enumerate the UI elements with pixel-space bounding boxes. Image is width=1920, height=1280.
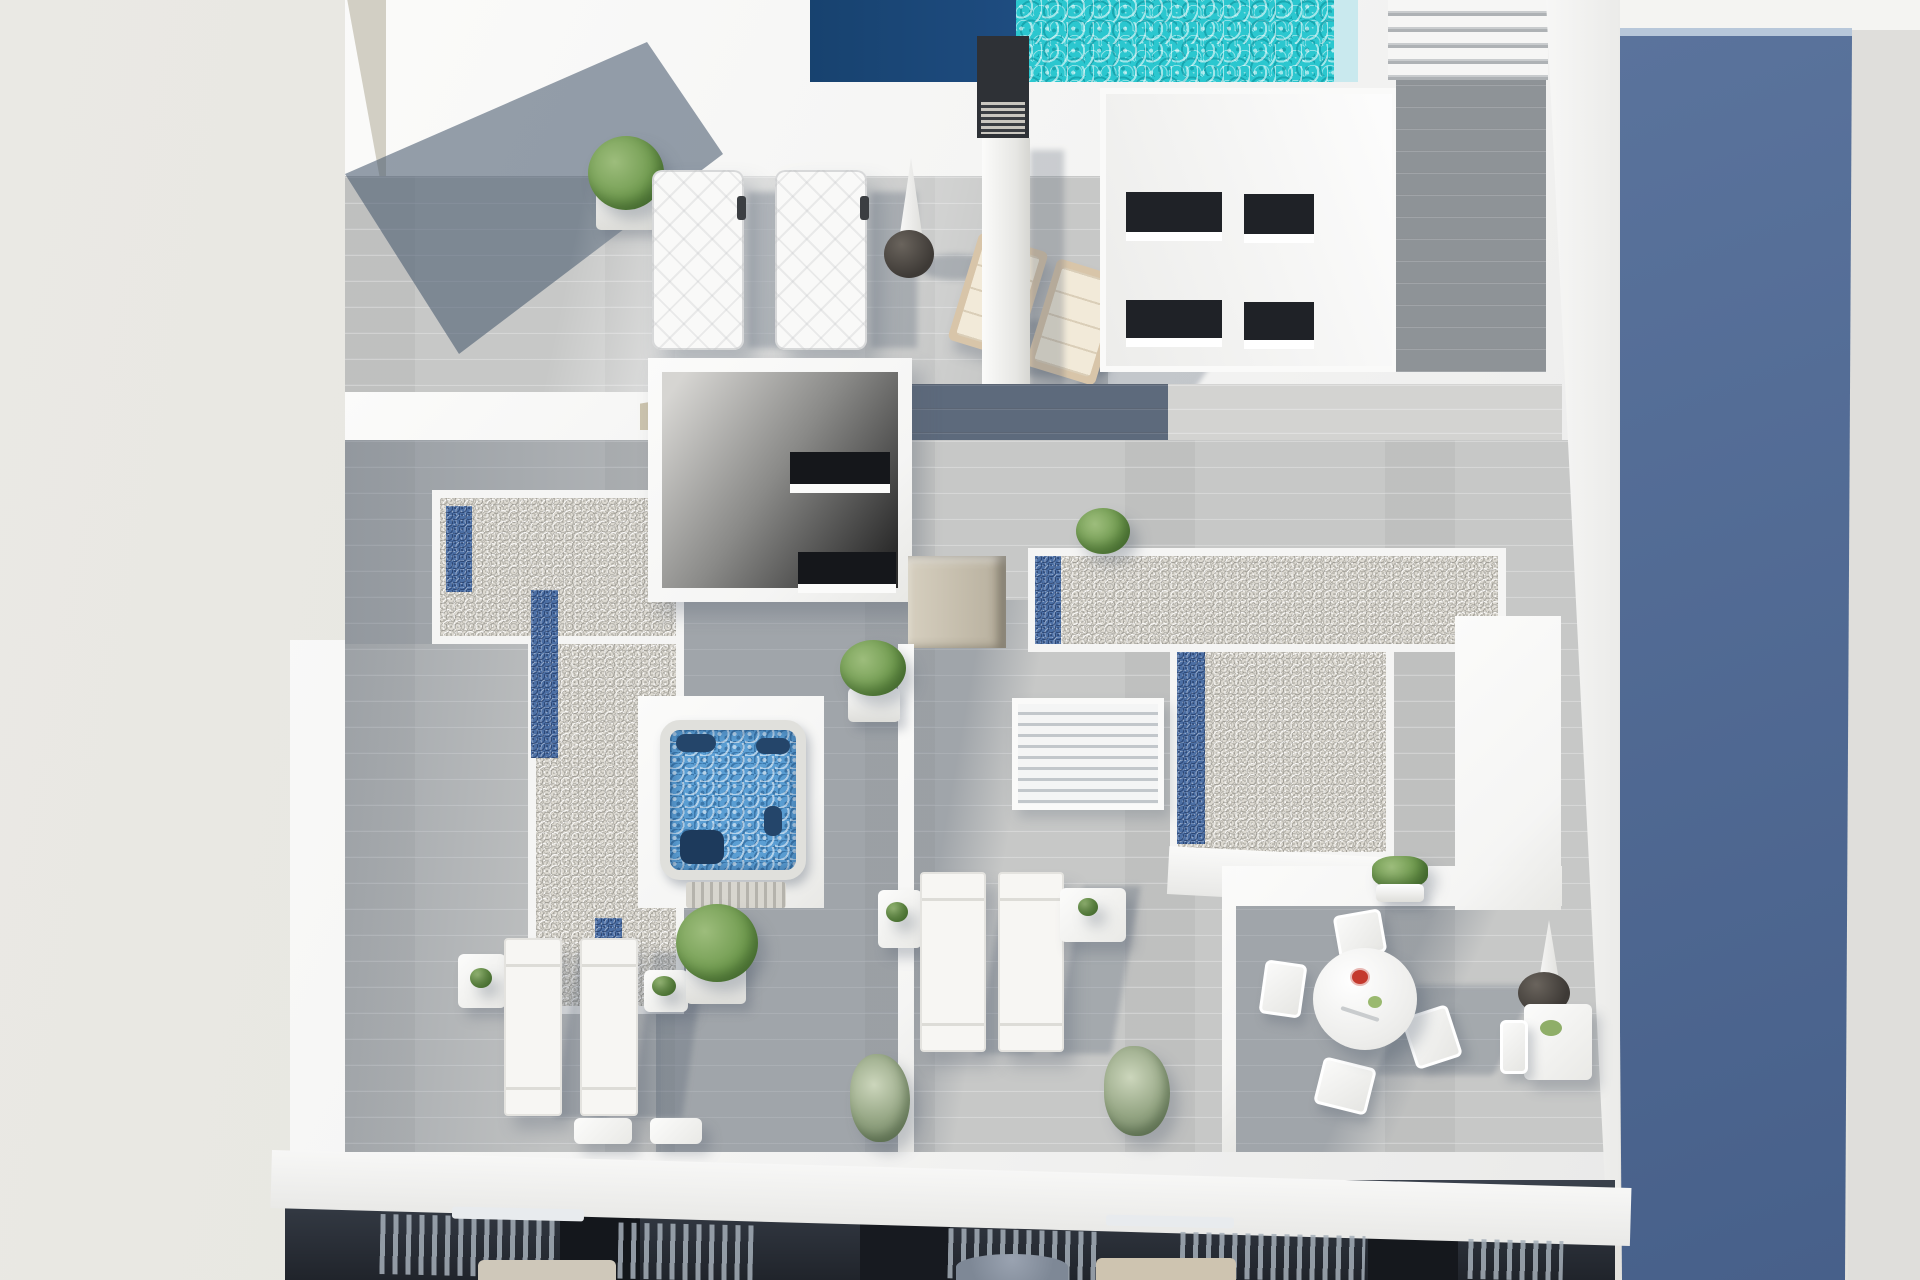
stairwell-window-4 xyxy=(1244,302,1314,340)
tiny-table-1 xyxy=(574,1118,632,1144)
doorway-recess xyxy=(908,556,1006,648)
skylight-strip-4 xyxy=(1035,556,1061,644)
stairwell-sill-1 xyxy=(1126,232,1222,241)
wall-planter-pot xyxy=(1376,884,1424,902)
big-plant-left xyxy=(676,904,758,982)
stairwell-window-3 xyxy=(1126,300,1222,338)
mid-plant xyxy=(840,640,906,696)
mini-table-plant xyxy=(652,976,676,996)
right-terrace-wood xyxy=(1396,40,1546,372)
balcony-railing-2 xyxy=(617,1222,753,1280)
pool-edge-step xyxy=(1334,0,1358,82)
lounger-wheel-1 xyxy=(737,196,746,220)
table-flower-decor xyxy=(1352,970,1368,984)
neighbor-glass-facade xyxy=(1612,36,1852,1280)
center-lounger-2 xyxy=(998,872,1064,1052)
dining-table-round xyxy=(1313,948,1417,1050)
center-lounger-1 xyxy=(920,872,986,1052)
interior-window-slit-1 xyxy=(790,452,890,484)
interior-window-slit-2 xyxy=(798,552,896,584)
hot-tub-seat-2 xyxy=(756,738,790,754)
left-lounger-1 xyxy=(504,938,562,1116)
side-table-center-plant xyxy=(886,902,908,922)
skylight-strip-5 xyxy=(1177,652,1205,844)
table-fruit-bowl xyxy=(1368,996,1382,1008)
stairwell-sill-3 xyxy=(1126,338,1222,347)
lower-floor-plant xyxy=(956,1254,1068,1280)
stairwell-window-2 xyxy=(1244,194,1314,234)
side-table-left-plant xyxy=(470,968,492,988)
tiny-table-2 xyxy=(650,1118,702,1144)
louvered-pergola-roof xyxy=(1012,698,1164,810)
skylight-gravel-bar-center xyxy=(1028,548,1506,652)
side-table-greens xyxy=(1540,1020,1562,1036)
sun-lounger-2 xyxy=(775,170,867,350)
interior-sill-1 xyxy=(790,484,890,493)
left-lounger-2 xyxy=(580,938,638,1116)
stairwell-sill-2 xyxy=(1244,234,1314,243)
rooftop-staircase xyxy=(1388,0,1548,80)
lower-floor-sofa-2 xyxy=(1096,1258,1236,1280)
hot-tub-seat-3 xyxy=(680,830,724,864)
lower-floor-sofa-1 xyxy=(478,1260,616,1280)
sun-lounger-1 xyxy=(652,170,744,350)
terrace-bush-1 xyxy=(850,1054,910,1142)
rooftop-scene xyxy=(0,0,1920,1280)
pool-shallow-section xyxy=(1016,0,1334,82)
side-table-dining xyxy=(1524,1004,1592,1080)
skylight-strip-1 xyxy=(446,506,472,592)
boundary-plant xyxy=(1076,508,1130,554)
dividing-wall-2 xyxy=(1222,866,1236,1152)
dining-chair-2 xyxy=(1258,959,1307,1018)
hot-tub-seat-4 xyxy=(764,806,782,836)
balcony-railing-5 xyxy=(1468,1239,1564,1280)
interior-sill-2 xyxy=(798,584,896,593)
parasol-base-1 xyxy=(884,230,934,278)
hot-tub-seat-1 xyxy=(676,734,716,752)
side-chair-dining xyxy=(1500,1020,1528,1074)
side-table-center-2-plant xyxy=(1078,898,1098,916)
lounger-wheel-2 xyxy=(860,196,869,220)
neighbor-wall-beige xyxy=(1848,0,1920,1280)
terrace-bush-2 xyxy=(1104,1046,1170,1136)
chimney-vent-louvers xyxy=(981,102,1025,134)
side-table-center-2 xyxy=(1060,888,1126,942)
stairwell-window-1 xyxy=(1126,192,1222,232)
hot-tub-steps xyxy=(686,882,786,908)
stairwell-sill-4 xyxy=(1244,340,1314,349)
skylight-strip-2 xyxy=(531,590,558,758)
